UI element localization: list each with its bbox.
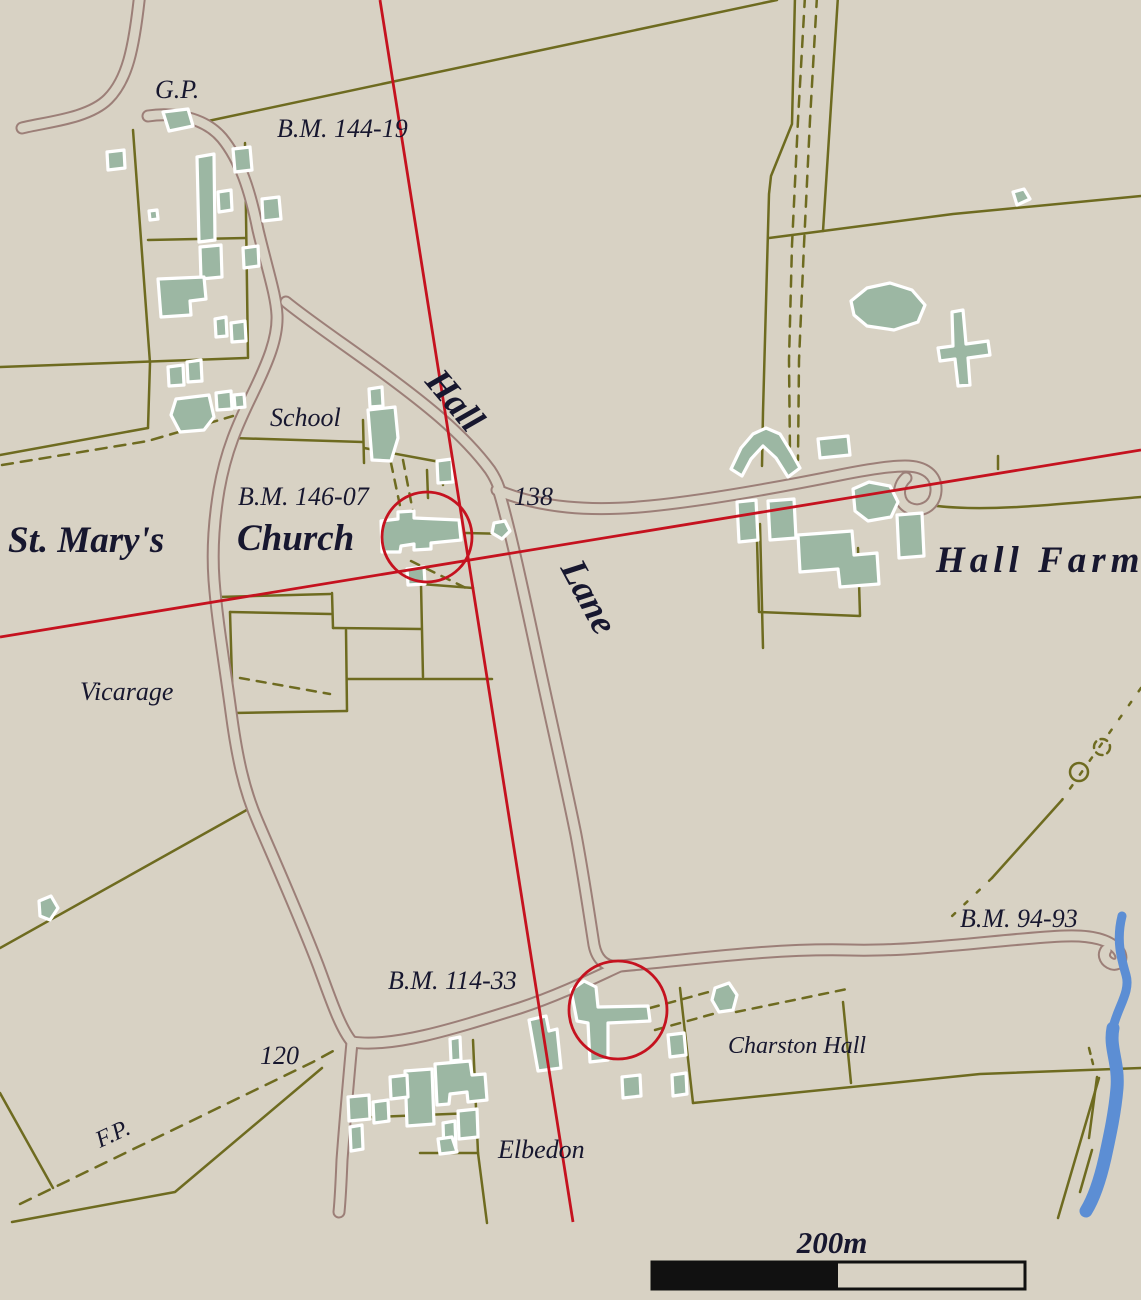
label-spot-138: 138	[514, 482, 553, 511]
building	[215, 317, 227, 337]
building	[818, 436, 850, 458]
building	[107, 150, 125, 170]
boundary-line	[346, 630, 347, 711]
boundary-line	[332, 593, 333, 628]
label-elbedon: Elbedon	[497, 1135, 585, 1164]
label-bm-146-07: B.M. 146-07	[238, 482, 370, 511]
building	[350, 1125, 363, 1151]
label-spot-120: 120	[260, 1041, 299, 1070]
building	[450, 1037, 461, 1061]
boundary-line	[363, 420, 364, 463]
building	[149, 210, 158, 220]
building	[390, 1075, 408, 1099]
building	[218, 190, 232, 212]
map-root: G.P. B.M. 144-19 School Hall B.M. 146-07…	[0, 0, 1141, 1300]
building	[171, 395, 214, 432]
label-st-marys: St. Mary's	[8, 520, 164, 561]
label-vicarage: Vicarage	[80, 677, 173, 706]
label-gp: G.P.	[155, 75, 199, 104]
wood-patch	[851, 283, 925, 330]
building	[672, 1073, 687, 1096]
boundary-line	[427, 470, 428, 498]
building	[853, 482, 898, 521]
building	[737, 500, 758, 542]
map-canvas: G.P. B.M. 144-19 School Hall B.M. 146-07…	[0, 0, 1141, 1300]
building	[437, 459, 453, 483]
building	[897, 513, 924, 558]
building	[234, 394, 245, 408]
building	[369, 387, 383, 407]
building	[168, 365, 184, 386]
building	[163, 109, 193, 131]
building	[373, 1100, 389, 1123]
label-bm-94-93: B.M. 94-93	[960, 904, 1078, 933]
scale-bar-filled-half	[652, 1262, 838, 1289]
building	[216, 391, 232, 410]
label-charston-hall: Charston Hall	[728, 1033, 866, 1059]
label-hall-farm: Hall Farm	[935, 540, 1141, 581]
label-bm-114-33: B.M. 114-33	[388, 966, 517, 995]
map-background	[0, 0, 1141, 1300]
building	[200, 245, 222, 279]
building	[231, 321, 246, 342]
label-church: Church	[237, 518, 354, 559]
building	[348, 1095, 370, 1121]
pond	[712, 983, 737, 1012]
building	[622, 1075, 641, 1098]
scale-bar-label: 200m	[796, 1225, 868, 1260]
building	[668, 1033, 686, 1057]
label-bm-144-19: B.M. 144-19	[277, 114, 408, 143]
building	[187, 360, 202, 382]
building	[438, 1137, 457, 1154]
building	[458, 1109, 478, 1139]
building	[197, 154, 215, 242]
building	[243, 246, 259, 268]
school-building	[368, 407, 398, 461]
label-school: School	[270, 403, 341, 432]
building	[233, 147, 252, 172]
building	[768, 499, 796, 540]
building	[262, 197, 281, 221]
